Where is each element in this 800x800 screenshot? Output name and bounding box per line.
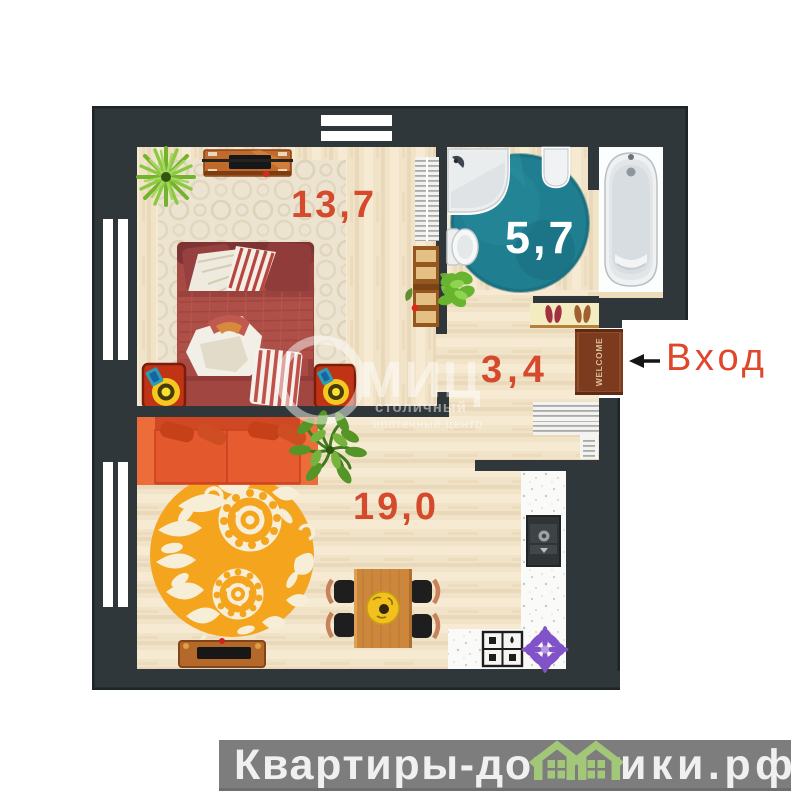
svg-text:ипотечный центр: ипотечный центр <box>373 417 483 431</box>
svg-text:ики.рф: ики.рф <box>620 741 797 789</box>
svg-text:19,0: 19,0 <box>353 486 439 528</box>
svg-text:5,7: 5,7 <box>505 212 577 263</box>
svg-text:3,4: 3,4 <box>481 349 549 391</box>
svg-text:Квартиры-до: Квартиры-до <box>234 741 533 789</box>
svg-text:13,7: 13,7 <box>291 184 377 226</box>
svg-text:столичный: столичный <box>375 399 467 416</box>
svg-text:Вход: Вход <box>666 337 768 379</box>
svg-text:WELCOME: WELCOME <box>594 338 604 387</box>
